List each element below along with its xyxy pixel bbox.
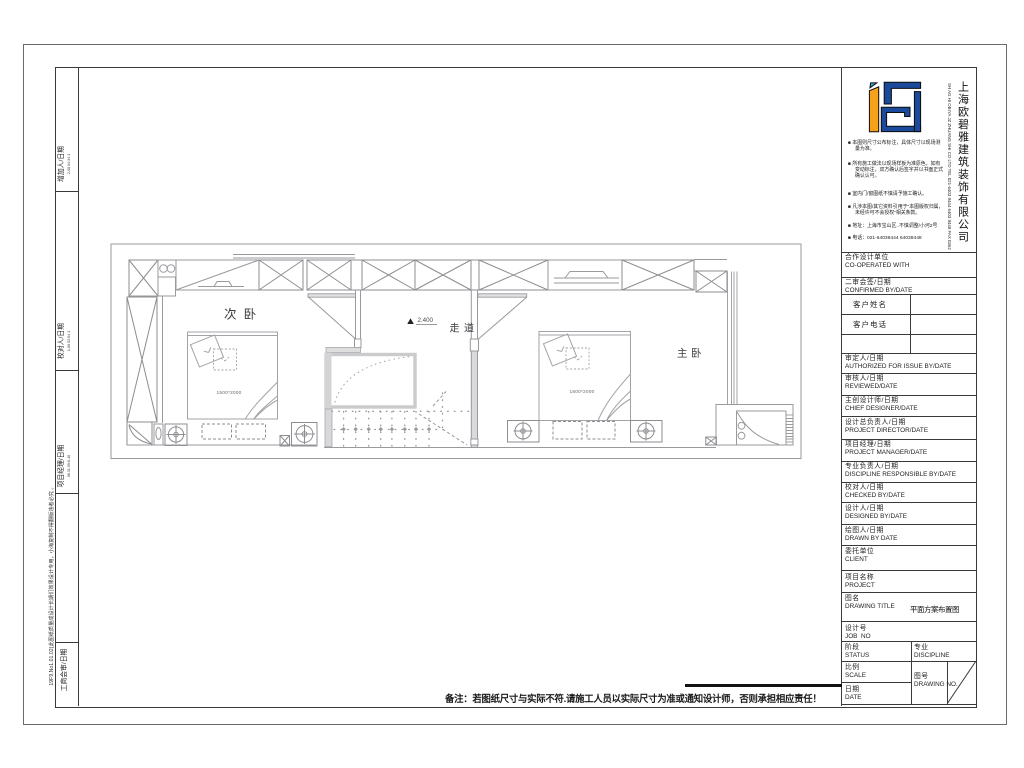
svg-text:1800*2000: 1800*2000 xyxy=(569,389,594,395)
svg-text:1500*2000: 1500*2000 xyxy=(216,390,241,396)
svg-text:次卧: 次卧 xyxy=(224,308,263,322)
svg-text:2.400: 2.400 xyxy=(418,317,434,324)
svg-text:走道: 走道 xyxy=(450,322,479,335)
svg-text:主卧: 主卧 xyxy=(677,347,705,360)
